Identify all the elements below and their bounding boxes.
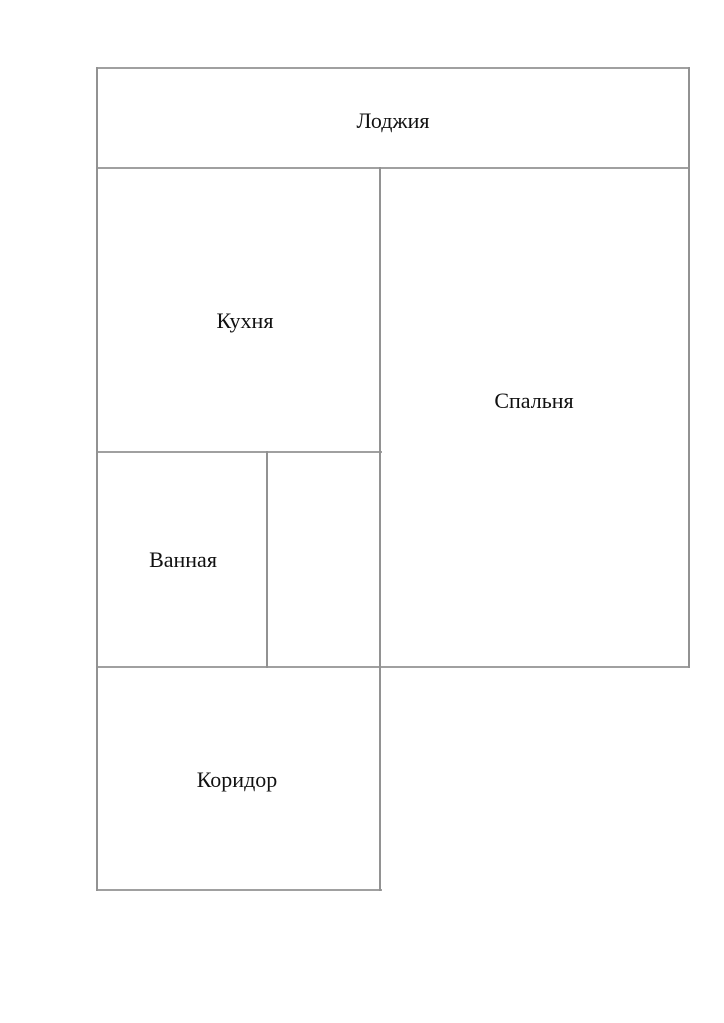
wall-middle <box>96 666 690 668</box>
room-corridor: Коридор <box>97 667 380 890</box>
wall-center-vertical <box>379 167 381 891</box>
room-loggia: Лоджия <box>97 68 689 168</box>
room-bedroom: Спальня <box>380 168 689 667</box>
room-kitchen: Кухня <box>97 168 380 452</box>
wall-right <box>688 67 690 668</box>
floor-plan-page: Лоджия Кухня Спальня Ванная Коридор <box>0 0 724 1023</box>
room-label-kitchen: Кухня <box>217 309 274 333</box>
room-label-corridor: Коридор <box>197 768 278 792</box>
room-label-bathroom: Ванная <box>149 548 217 572</box>
wall-bathroom-divider <box>266 451 268 668</box>
wall-corridor-bottom <box>96 889 382 891</box>
wall-kitchen-bottom <box>96 451 382 453</box>
room-label-loggia: Лоджия <box>356 109 429 133</box>
room-storage <box>267 452 380 667</box>
room-bathroom: Ванная <box>97 452 267 667</box>
wall-top <box>96 67 690 69</box>
wall-left <box>96 67 98 891</box>
wall-loggia-bottom <box>96 167 690 169</box>
room-label-bedroom: Спальня <box>494 389 573 413</box>
